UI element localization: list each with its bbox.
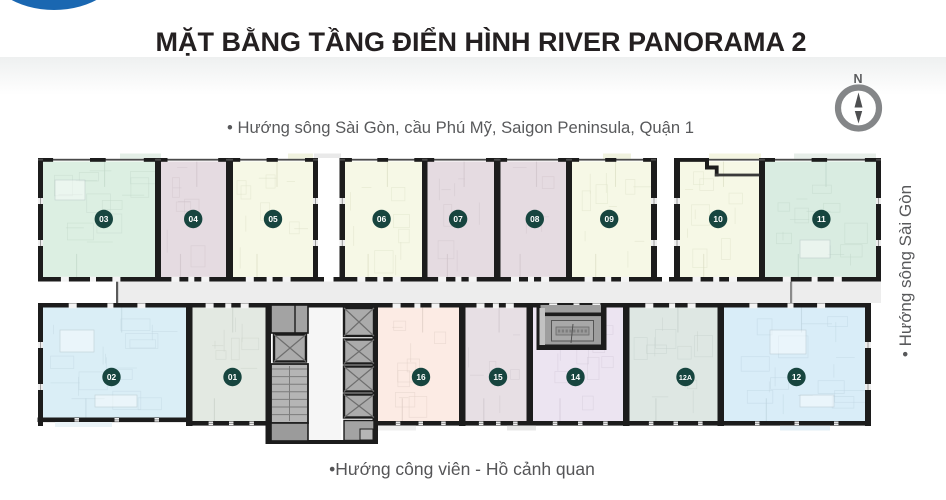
svg-text:•Hướng công viên - Hồ cảnh qua: •Hướng công viên - Hồ cảnh quan — [329, 459, 595, 479]
svg-text:15: 15 — [493, 372, 503, 382]
svg-text:09: 09 — [605, 214, 615, 224]
svg-text:N: N — [853, 72, 862, 86]
svg-text:11: 11 — [817, 214, 826, 224]
svg-text:MẶT BẰNG TẦNG ĐIỂN HÌNH RIVER: MẶT BẰNG TẦNG ĐIỂN HÌNH RIVER PANORAMA 2 — [155, 26, 806, 57]
svg-text:06: 06 — [377, 214, 387, 224]
svg-text:07: 07 — [453, 214, 463, 224]
svg-text:08: 08 — [530, 214, 540, 224]
svg-text:• Hướng sông Sài Gòn: • Hướng sông Sài Gòn — [896, 185, 915, 357]
svg-text:02: 02 — [107, 372, 117, 382]
svg-text:• Hướng sông Sài Gòn, cầu Phú: • Hướng sông Sài Gòn, cầu Phú Mỹ, Saigon… — [227, 118, 694, 137]
svg-text:03: 03 — [99, 214, 109, 224]
svg-text:05: 05 — [268, 214, 278, 224]
svg-text:01: 01 — [228, 372, 238, 382]
svg-text:14: 14 — [571, 372, 581, 382]
svg-text:16: 16 — [416, 372, 426, 382]
svg-text:12: 12 — [792, 372, 802, 382]
svg-text:10: 10 — [713, 214, 723, 224]
svg-text:04: 04 — [189, 214, 199, 224]
svg-text:12A: 12A — [679, 373, 692, 382]
